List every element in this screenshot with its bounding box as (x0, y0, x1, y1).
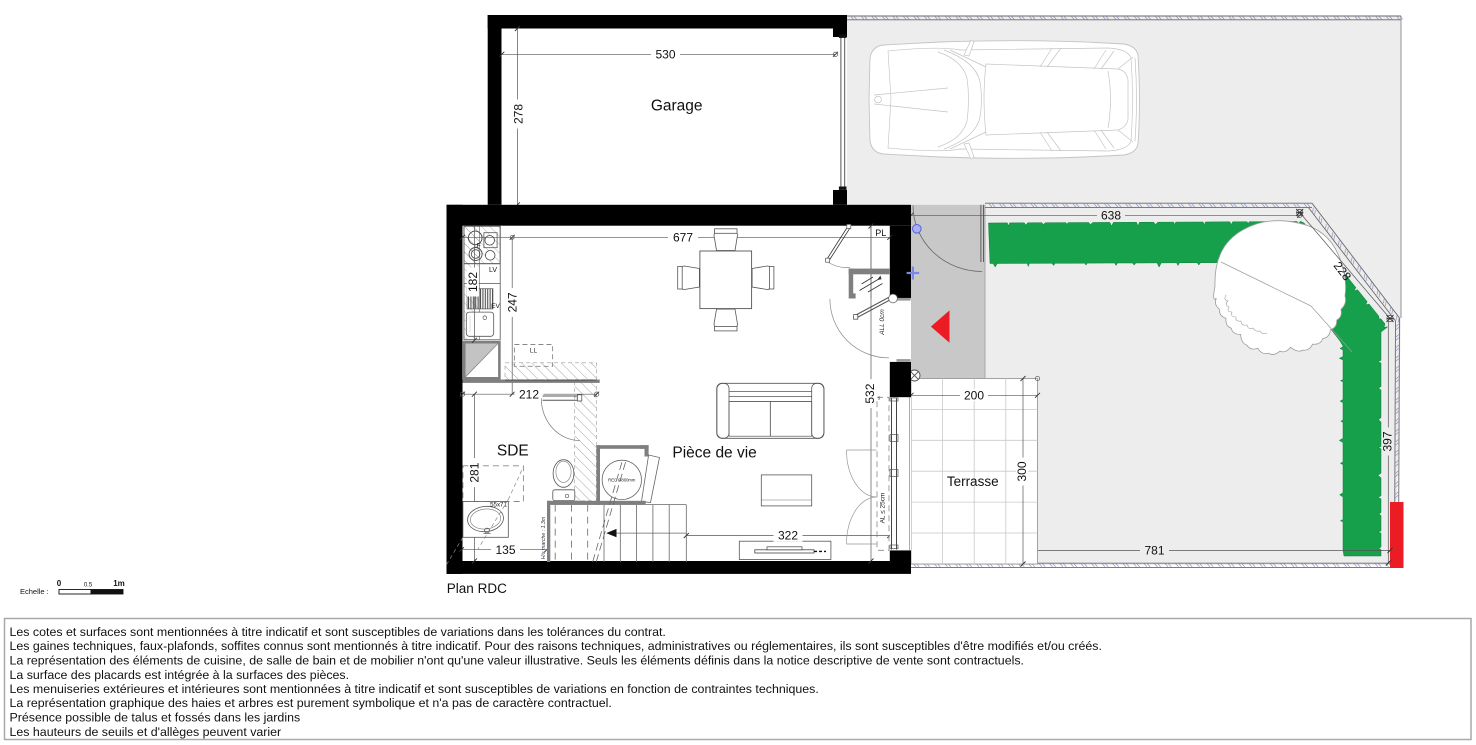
svg-text:Présence possible de talus et: Présence possible de talus et fossés dan… (10, 711, 301, 725)
svg-text:LL: LL (530, 348, 538, 355)
svg-text:Les menuiseries extérieures et: Les menuiseries extérieures et intérieur… (10, 682, 819, 696)
svg-text:1m: 1m (113, 579, 125, 588)
svg-text:300: 300 (1015, 461, 1029, 481)
svg-text:La représentation graphique de: La représentation graphique des haies et… (10, 696, 612, 710)
svg-text:278: 278 (512, 104, 526, 124)
svg-text:781: 781 (1144, 544, 1164, 558)
svg-text:Plan RDC: Plan RDC (447, 581, 507, 596)
svg-text:677: 677 (673, 231, 693, 245)
svg-text:212: 212 (519, 387, 539, 401)
svg-text:Garage: Garage (651, 98, 703, 115)
svg-text:Terrasse: Terrasse (947, 474, 999, 489)
svg-text:AL ≤ 25cm: AL ≤ 25cm (880, 493, 887, 524)
svg-text:182: 182 (466, 272, 480, 292)
svg-text:135: 135 (495, 543, 515, 557)
svg-text:530: 530 (655, 48, 675, 62)
svg-text:LV: LV (489, 267, 497, 274)
svg-text:EV: EV (491, 303, 500, 310)
svg-text:Les cotes et surfaces sont men: Les cotes et surfaces sont mentionnées à… (10, 625, 666, 639)
svg-text:247: 247 (505, 292, 519, 312)
svg-text:H/s marche : 1.3m: H/s marche : 1.3m (541, 516, 547, 559)
svg-text:PL: PL (875, 228, 886, 238)
svg-text:Les gaines techniques, faux-pl: Les gaines techniques, faux-plafonds, so… (10, 639, 1102, 653)
svg-text:0: 0 (57, 579, 62, 588)
svg-text:200: 200 (964, 388, 984, 402)
svg-text:532: 532 (863, 383, 877, 403)
svg-text:55x71: 55x71 (490, 502, 507, 509)
svg-text:0.5: 0.5 (84, 583, 93, 589)
svg-text:Les hauteurs de seuils et d'al: Les hauteurs de seuils et d'allèges peuv… (10, 725, 282, 739)
svg-text:La représentation des éléments: La représentation des éléments de cuisin… (10, 654, 1024, 668)
svg-text:Pièce de vie: Pièce de vie (672, 445, 756, 462)
svg-text:REC Ø800mm: REC Ø800mm (608, 478, 636, 483)
svg-text:638: 638 (1101, 208, 1121, 222)
svg-text:281: 281 (468, 462, 482, 482)
svg-text:397: 397 (1381, 431, 1395, 451)
svg-text:ALL 0cm: ALL 0cm (879, 309, 886, 336)
svg-text:Echelle :: Echelle : (20, 587, 49, 596)
svg-text:F: F (477, 243, 481, 250)
svg-text:La surface des placards est in: La surface des placards est intégrée à l… (10, 668, 350, 682)
svg-text:322: 322 (778, 529, 798, 543)
svg-text:SDE: SDE (497, 442, 529, 459)
